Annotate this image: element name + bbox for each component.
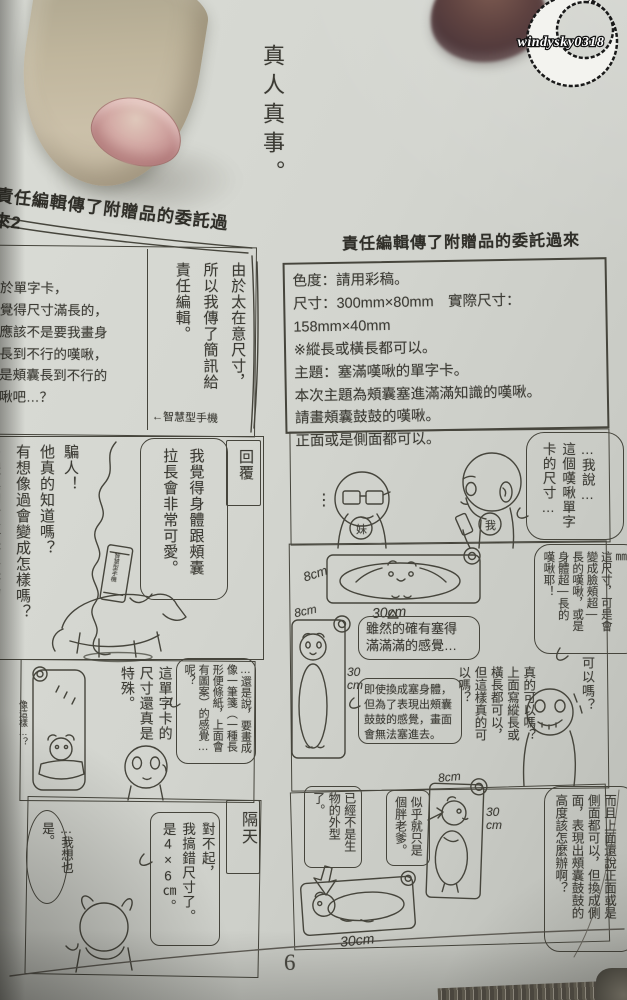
l1-clipped-paragraph: 關於單字卡， 我覺得尺寸滿長的， 但應該不是要我畫身 體長到不行的嘆啾， 而是頰… <box>0 277 149 410</box>
l3-speech1-text: …還是說，要畫成像一筆箋（一種長形便條紙，上面會有圖案）的感覺…呢？ <box>182 664 252 756</box>
r1-speech-text: …我說… 這個嘆啾單字 卡的尺寸… <box>538 442 597 530</box>
lying-card-hamster-drawing <box>300 871 419 936</box>
reply-speech-text: 我覺得身體跟頰囊 拉長會非常可愛。 <box>156 448 209 590</box>
l2-thought-text: 騙人！ 他真的知道嗎？ 有想像過會變成怎樣嗎？ <box>10 444 82 652</box>
r3-speech-text: 而且上面還說正面或是 側面都可以，但換成側 面，表現出頰囊鼓鼓的 高度該怎麼辦啊… <box>552 794 617 942</box>
standing-card-width-label: 8cm <box>437 769 461 785</box>
r2-speech-text: 300㎜×80㎜ 這尺寸，可是會 變成臉頰超— 長的嘆啾，或是 身體超—長的 嘆… <box>541 551 627 645</box>
dog-back-view-drawing <box>76 896 132 972</box>
vertical-card-hamster-drawing <box>292 616 350 758</box>
spec-line: 尺寸：300mm×80mm 實際尺寸：158mm×40mm <box>293 288 598 339</box>
l4-thought-text: …我想也是。 <box>38 822 76 894</box>
standing-card-height-label: 30 cm <box>486 806 502 832</box>
l2-thought-clipped: 身體真的會拉長很長嗎 <box>0 446 4 656</box>
l1-speech: 由於太在意尺寸， 所以我傳了簡訊給 責任編輯。 <box>168 262 251 414</box>
page-number: 6 <box>284 950 296 976</box>
horizontal-card-hamster-drawing <box>327 548 480 603</box>
spec-box-text: 色度：請用彩稿。 尺寸：300mm×80mm 實際尺寸：158mm×40mm ※… <box>292 265 599 454</box>
r3-bubble2-text: 已經不是生物的外型了。 <box>310 792 357 860</box>
fabric-corner <box>596 968 627 1000</box>
reply-label-box: 回覆 <box>226 440 261 506</box>
l3-speech2-text: 這單字卡的 尺寸還真是 特殊。 <box>118 666 175 748</box>
tag-card-drawing <box>33 667 85 790</box>
standing-card-hamster-drawing <box>426 777 487 899</box>
next-day-label: 隔天 <box>235 811 259 869</box>
page-stack-lines <box>251 256 258 432</box>
thought-cloud-edge <box>92 442 116 655</box>
watermark-text: windysky0318 <box>518 35 605 50</box>
meerkat-face-drawing <box>125 746 167 800</box>
page-tagline: 真人真事。 <box>256 44 288 224</box>
l1-smartphone-note: ←智慧型手機 <box>152 408 219 426</box>
thought-ellipse-tail <box>66 944 78 950</box>
l3-aside-text: 像這樣…？ <box>17 700 30 766</box>
r3-bubble1-text: 似乎就只是 個胖老爹。 <box>392 796 423 858</box>
next-day-label-box: 隔天 <box>226 800 260 874</box>
sorry-speech-text: 對不起， 我搞錯尺寸了。 是4×6㎝。 <box>158 822 217 936</box>
watermark: windysky0318 <box>497 0 627 104</box>
photo-of-comic-page: 真人真事。 責任編輯傳了附贈品的委託過來2 責任編輯傳了附贈品的委託過來 色度：… <box>0 0 627 1000</box>
sister-name-tag: 妹 <box>356 521 367 537</box>
r2-thought-text: 真的可以嗎？ 上面寫縱長或 橫長都可以， 但這樣真的可 以嗎？ <box>455 666 536 762</box>
reply-label: 回覆 <box>235 449 256 499</box>
r2-bubble2-text: 即使換成塞身體， 但為了表現出頰囊 鼓鼓的感覺，畫面 會無法塞進去。 <box>364 683 452 742</box>
page-bottom-edge <box>10 929 624 976</box>
r2-aside-text: 可以嗎？ <box>578 656 597 728</box>
me-name-tag: 我 <box>485 517 496 533</box>
r2-bubble1-text: 雖然的確有塞得 滿滿滿的感覺… <box>366 621 457 655</box>
me-character-drawing <box>455 453 521 548</box>
r1-dots: ⋮ <box>316 490 332 510</box>
small-arrow <box>428 808 443 820</box>
big-hollow-arrow <box>314 866 336 895</box>
right-column-header: 責任編輯傳了附贈品的委託過來 <box>342 226 602 255</box>
